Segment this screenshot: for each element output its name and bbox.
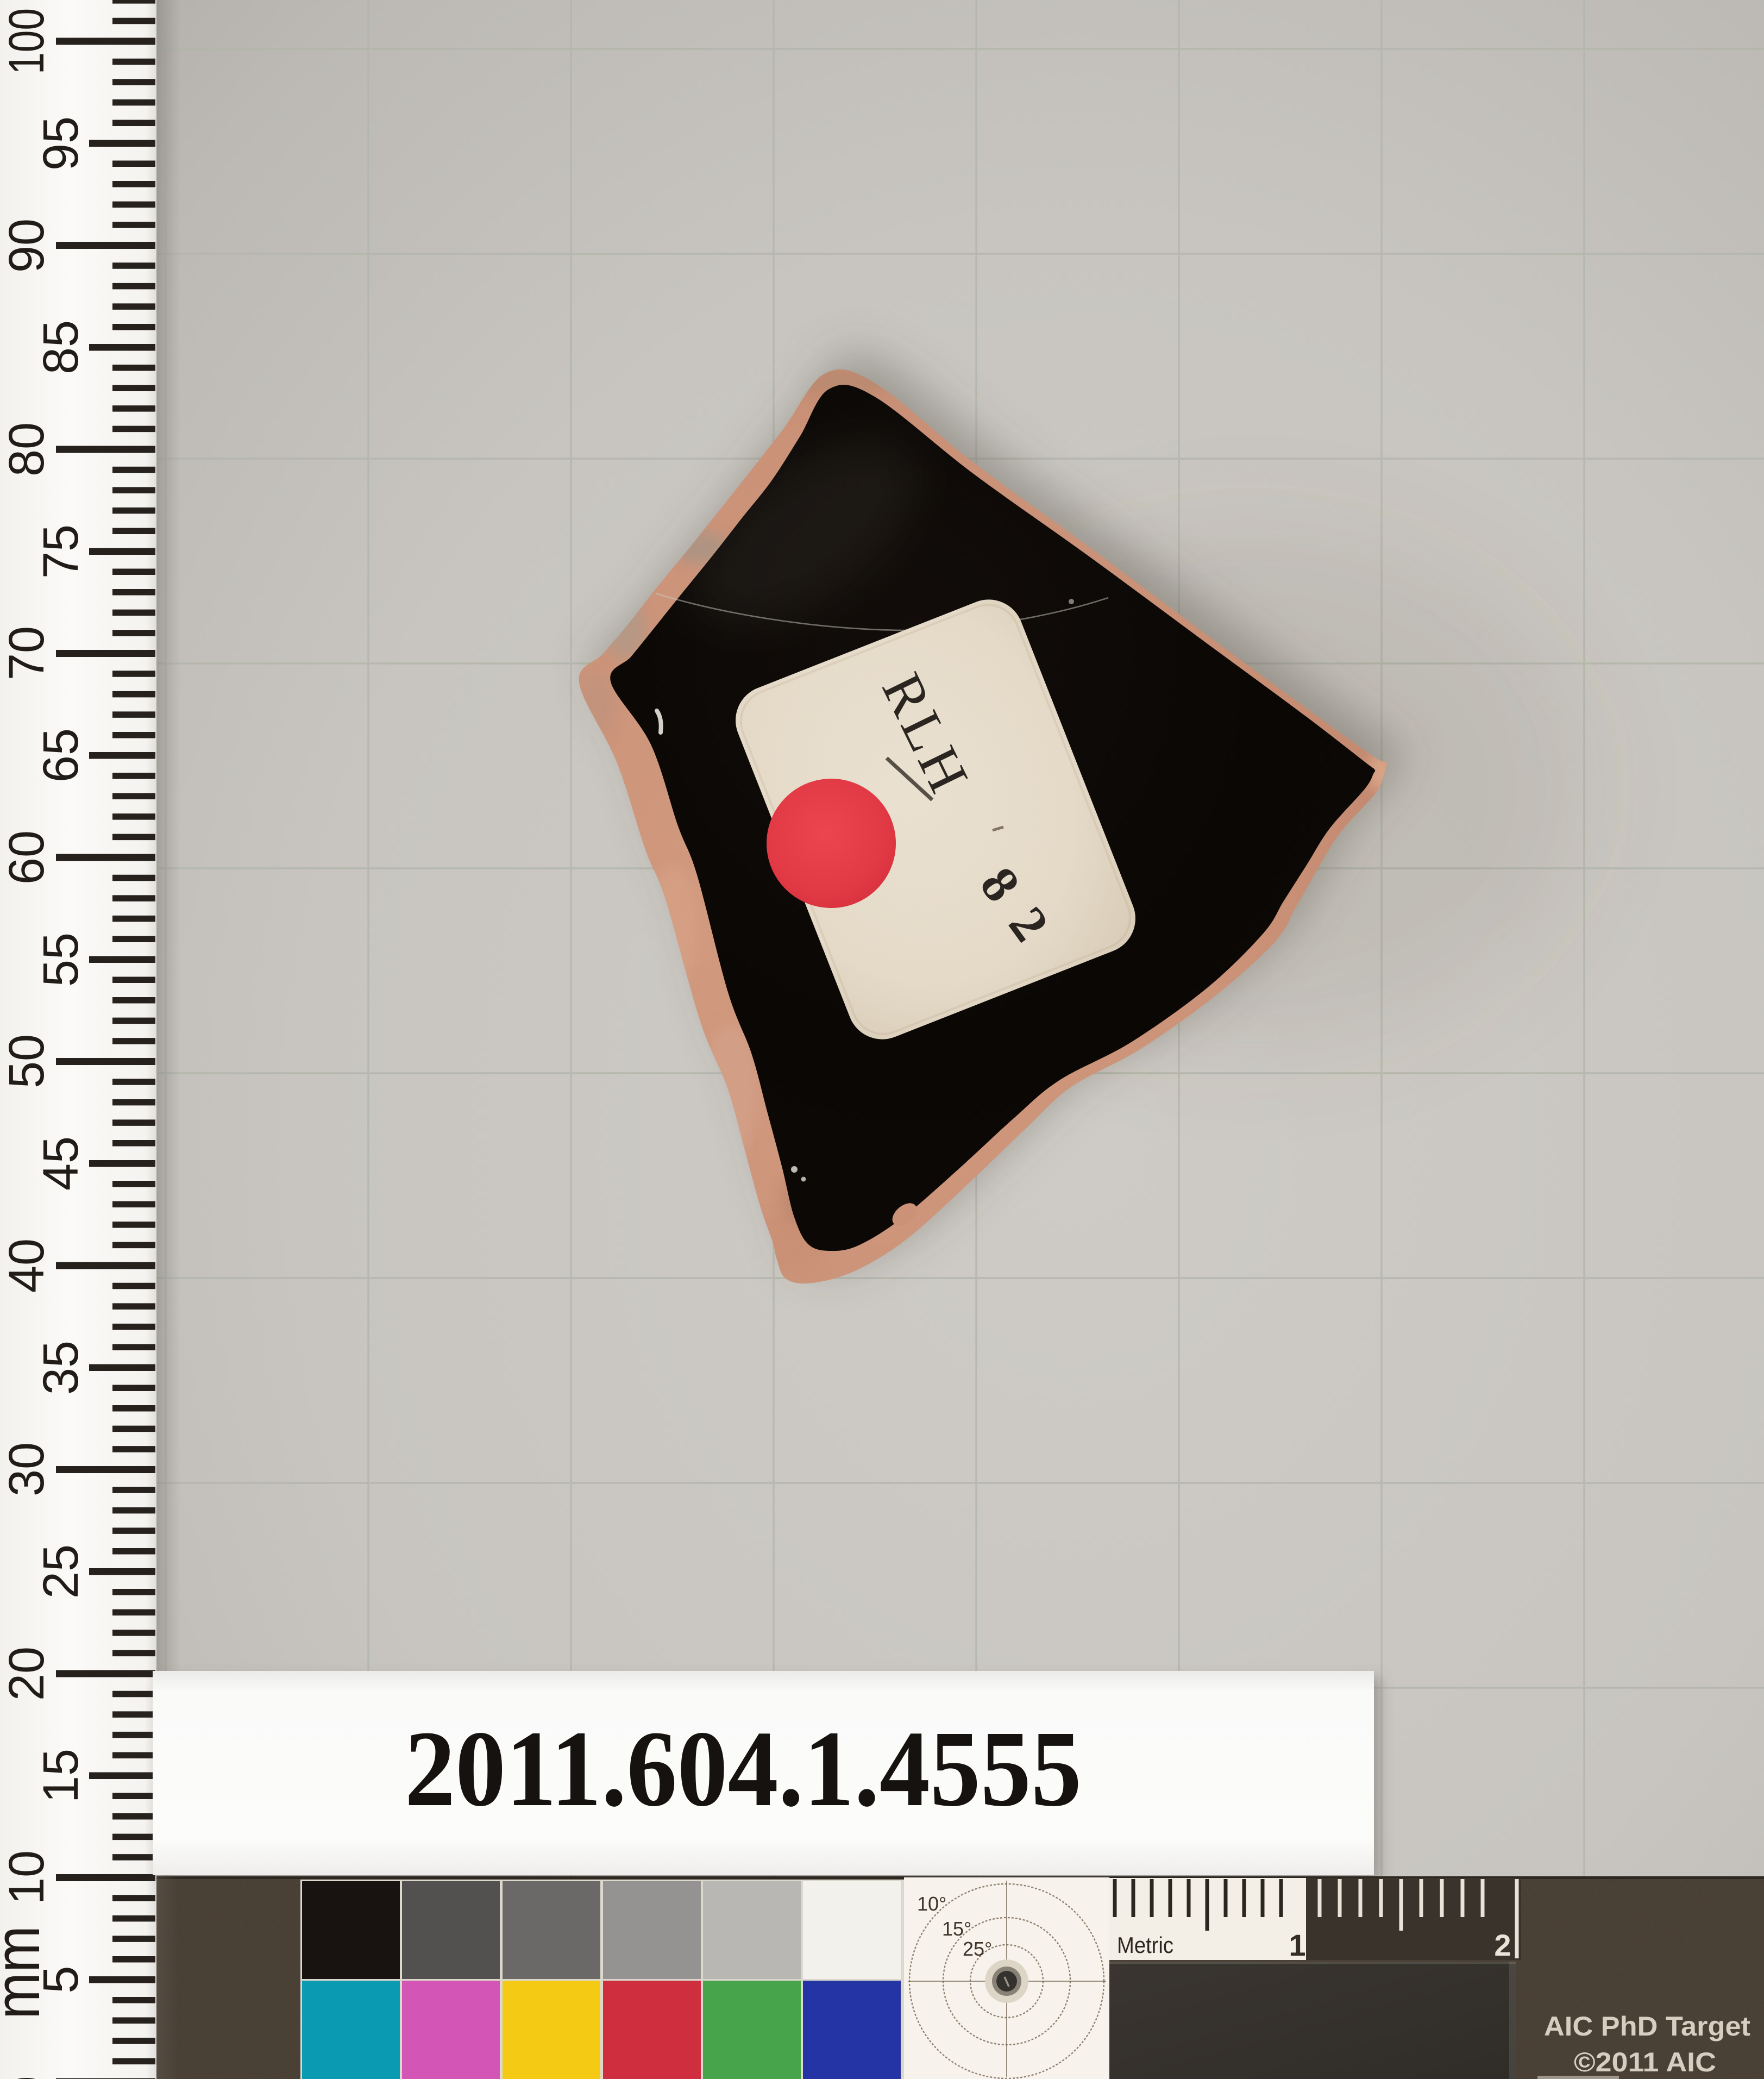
svg-text:65: 65 <box>33 728 89 782</box>
svg-text:90: 90 <box>0 218 54 273</box>
svg-text:75: 75 <box>33 524 89 579</box>
svg-text:15°: 15° <box>942 1918 971 1940</box>
svg-text:40: 40 <box>0 1238 54 1293</box>
svg-text:80: 80 <box>0 422 54 477</box>
svg-text:AIC PhD Target: AIC PhD Target <box>1544 2011 1750 2042</box>
svg-text:35: 35 <box>33 1341 89 1395</box>
svg-text:1: 1 <box>1289 1928 1305 1962</box>
svg-text:Metric: Metric <box>1117 1932 1173 1958</box>
svg-text:10°: 10° <box>917 1893 946 1915</box>
svg-text:25: 25 <box>33 1544 89 1599</box>
svg-text:25°: 25° <box>963 1938 992 1960</box>
svg-text:2: 2 <box>1494 1928 1511 1962</box>
svg-text:55: 55 <box>33 932 89 987</box>
svg-text:10: 10 <box>0 1850 54 1905</box>
svg-text:95: 95 <box>33 116 89 171</box>
svg-text:20: 20 <box>0 1646 54 1701</box>
svg-text:©2011 AIC: ©2011 AIC <box>1574 2047 1716 2077</box>
svg-text:100: 100 <box>0 8 54 74</box>
svg-text:15: 15 <box>33 1749 89 1803</box>
svg-text:45: 45 <box>33 1136 89 1191</box>
svg-text:70: 70 <box>0 626 54 680</box>
svg-text:85: 85 <box>33 320 89 374</box>
svg-text:mm: mm <box>0 1926 53 2019</box>
svg-text:0: 0 <box>0 2076 54 2079</box>
svg-text:30: 30 <box>0 1442 54 1496</box>
svg-text:2011.604.1.4555: 2011.604.1.4555 <box>405 1709 1082 1829</box>
svg-text:60: 60 <box>0 830 54 885</box>
svg-text:50: 50 <box>0 1034 54 1088</box>
